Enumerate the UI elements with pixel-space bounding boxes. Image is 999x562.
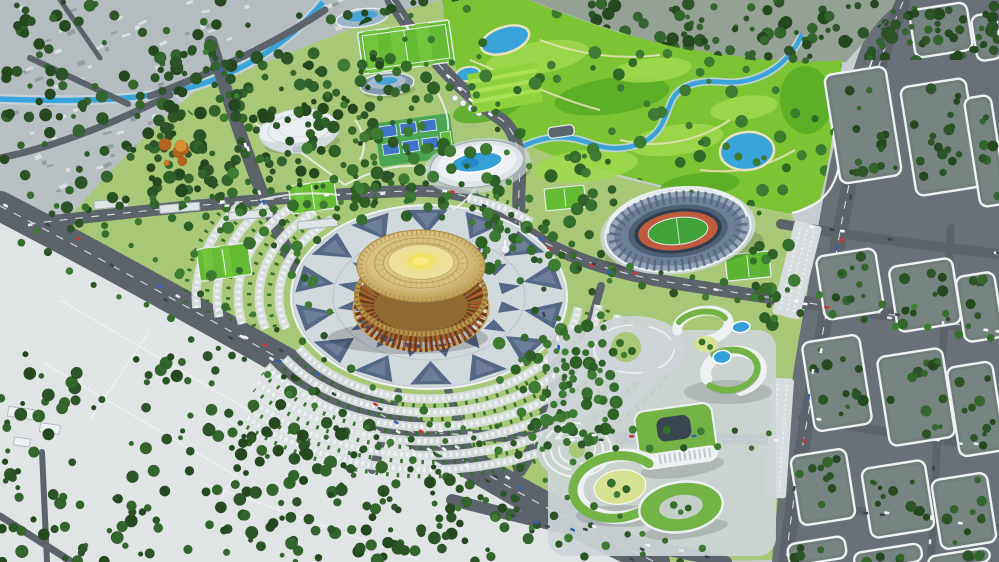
street-tree (426, 421, 433, 428)
tree (540, 414, 552, 426)
street-tree (525, 194, 533, 202)
tree (424, 203, 433, 212)
tree (45, 66, 56, 77)
street-tree (878, 300, 886, 308)
tree (320, 201, 328, 209)
street-tree (220, 113, 229, 122)
street-tree (545, 251, 553, 259)
tree (492, 109, 498, 115)
tree (305, 121, 311, 127)
street-tree (369, 384, 376, 391)
tree (280, 553, 285, 558)
street-tree (338, 409, 347, 418)
street-tree (561, 383, 568, 390)
street-tree (680, 444, 687, 451)
tree (788, 274, 800, 286)
street-tree (101, 222, 108, 229)
tree (281, 52, 293, 64)
tree (407, 182, 417, 192)
street-tree (150, 195, 157, 202)
street-tree (384, 9, 391, 16)
street-tree (305, 301, 312, 308)
street-tree (891, 323, 899, 331)
street-tree (527, 424, 534, 431)
tree (1, 73, 11, 83)
street-tree (525, 226, 531, 232)
car (224, 204, 229, 207)
tree (150, 140, 157, 147)
street-tree (128, 243, 133, 248)
tree (675, 157, 686, 168)
car (929, 539, 932, 544)
tree (761, 255, 771, 265)
car (599, 439, 604, 442)
tree (371, 182, 380, 191)
render-stage (0, 0, 999, 562)
tree (553, 75, 561, 83)
tree (17, 141, 25, 149)
tree (168, 111, 179, 122)
tree (385, 53, 396, 64)
tree (266, 430, 273, 437)
tree (245, 526, 258, 539)
tree (249, 486, 261, 498)
tree (184, 377, 191, 384)
tree (774, 131, 786, 143)
street-tree (495, 101, 500, 106)
tree (585, 230, 594, 239)
tree (308, 387, 316, 395)
tree (42, 389, 55, 402)
street-tree (299, 337, 307, 345)
tree (243, 237, 255, 249)
tree (74, 16, 84, 26)
street-tree (303, 200, 311, 208)
street-tree (236, 208, 244, 216)
tree (258, 61, 268, 71)
street-tree (409, 456, 417, 464)
tree (346, 464, 355, 473)
street-tree (311, 402, 318, 409)
tree (636, 50, 645, 59)
tree (51, 525, 59, 533)
street-tree (720, 278, 729, 287)
tree (287, 200, 299, 212)
tree (265, 522, 274, 531)
street-tree (491, 515, 498, 522)
street-tree (578, 441, 586, 449)
tree (59, 20, 71, 32)
street-tree (987, 334, 995, 342)
tree (704, 44, 710, 50)
tree (762, 5, 772, 15)
tree (750, 27, 755, 32)
tree (240, 510, 250, 520)
street-tree (427, 36, 435, 44)
tree (30, 516, 36, 522)
tree (486, 552, 495, 561)
tree (112, 496, 118, 502)
tree (359, 132, 370, 143)
tree (206, 270, 217, 281)
tree (58, 81, 67, 90)
tree (216, 95, 224, 103)
tree (521, 334, 529, 342)
tree (412, 95, 420, 103)
tree (684, 22, 693, 31)
tree (289, 453, 301, 465)
tree (222, 222, 234, 234)
tree (228, 428, 238, 438)
tree (444, 145, 456, 157)
tree (182, 71, 187, 76)
car (556, 437, 561, 440)
tree (909, 24, 915, 30)
tree (846, 4, 851, 9)
tree (588, 188, 598, 198)
tree (126, 501, 136, 511)
tree (235, 50, 243, 58)
tree (475, 236, 487, 248)
tree (5, 448, 10, 453)
tree (313, 110, 323, 120)
tree (375, 461, 387, 473)
tree (428, 532, 441, 545)
tree (686, 122, 693, 129)
street-tree (954, 330, 963, 339)
street-tree (732, 427, 738, 433)
tree (198, 144, 207, 153)
street-tree (408, 436, 415, 443)
street-tree (468, 83, 476, 91)
tree (178, 435, 183, 440)
street-tree (455, 485, 463, 493)
tree (699, 17, 704, 22)
tree (194, 107, 207, 120)
tree (925, 9, 936, 20)
tree (561, 358, 566, 363)
tree (769, 297, 774, 302)
street-tree (469, 205, 476, 212)
tree (380, 498, 386, 504)
tree (65, 186, 73, 194)
street-tree (135, 218, 142, 225)
tree (255, 457, 265, 467)
tree (206, 404, 217, 415)
tree (273, 447, 282, 456)
street-tree (594, 425, 603, 434)
tree (387, 496, 393, 502)
tree (163, 171, 176, 184)
tree (295, 259, 300, 264)
tree (100, 146, 110, 156)
street-tree (217, 192, 224, 199)
tree (187, 47, 196, 56)
city-block (790, 448, 856, 526)
tree (170, 131, 176, 137)
tree (327, 525, 335, 533)
tree (278, 500, 284, 506)
tree (335, 484, 347, 496)
car (930, 515, 933, 520)
tree (337, 59, 350, 72)
tree (177, 156, 187, 166)
tree (758, 295, 765, 302)
tree (71, 114, 76, 119)
tree (32, 410, 45, 423)
street-tree (75, 219, 84, 228)
street-tree (556, 316, 562, 322)
street-tree (796, 309, 804, 317)
tree (439, 214, 446, 221)
tree (430, 491, 435, 496)
tree (14, 408, 27, 421)
tree (308, 81, 319, 92)
tree (203, 423, 216, 436)
tree (284, 117, 291, 124)
street-tree (494, 446, 503, 455)
tree (993, 35, 999, 43)
tree (858, 27, 869, 38)
street-tree (580, 552, 588, 560)
tree (314, 185, 319, 190)
street-tree (483, 497, 490, 504)
street-tree (44, 248, 52, 256)
tree (15, 485, 20, 490)
tree (203, 66, 210, 73)
tree (158, 87, 166, 95)
tree (12, 66, 23, 77)
tree (324, 92, 330, 98)
tree (445, 504, 455, 514)
street-tree (517, 277, 524, 284)
street-tree (274, 327, 280, 333)
tree (5, 109, 15, 119)
tree (167, 353, 174, 360)
tree (84, 0, 96, 12)
tree (256, 541, 266, 551)
tree (277, 156, 287, 166)
tree (371, 167, 384, 180)
tree (519, 386, 527, 394)
tree (365, 85, 370, 90)
street-tree (554, 425, 562, 433)
street-tree (942, 310, 949, 317)
tree (553, 367, 559, 373)
tree (421, 143, 432, 154)
street-tree (564, 534, 573, 543)
tree (308, 47, 320, 59)
tree (122, 196, 130, 204)
street-tree (347, 364, 356, 373)
tree (285, 537, 298, 550)
street-tree (531, 307, 539, 315)
street-tree (590, 502, 598, 510)
tree (284, 477, 296, 489)
tree (320, 117, 330, 127)
street-tree (476, 440, 483, 447)
tree (797, 150, 807, 160)
football-field-west (196, 243, 252, 282)
tree (227, 188, 238, 199)
street-tree (294, 250, 301, 257)
tree (341, 96, 346, 101)
street-tree (445, 83, 453, 91)
tree (241, 151, 247, 157)
street-tree (321, 357, 327, 363)
tree (343, 10, 353, 20)
street-tree (49, 210, 56, 217)
street-tree (245, 179, 252, 186)
tree (473, 91, 480, 98)
tree (20, 29, 29, 38)
tree (802, 40, 811, 49)
tree (46, 79, 54, 87)
tree (265, 454, 270, 459)
tree (125, 145, 132, 152)
street-tree (924, 323, 931, 330)
tree (370, 127, 383, 140)
tree (945, 29, 953, 37)
tree (235, 156, 240, 161)
tree (127, 153, 135, 161)
tree (504, 228, 510, 234)
tree (826, 28, 831, 33)
street-tree (422, 180, 429, 187)
tree (313, 236, 321, 244)
tree (847, 37, 853, 43)
tree (446, 512, 456, 522)
street-tree (568, 241, 575, 248)
tree (590, 363, 598, 371)
tree (427, 81, 440, 94)
street-tree (203, 49, 209, 55)
tree (524, 360, 530, 366)
tree (772, 86, 780, 94)
tree (71, 367, 83, 379)
street-tree (550, 401, 557, 408)
tree (159, 138, 172, 151)
tree (569, 252, 576, 259)
city-block (801, 334, 872, 432)
tree (126, 471, 138, 483)
tree (590, 150, 602, 162)
tree (375, 74, 383, 82)
tree (299, 476, 308, 485)
street-tree (494, 423, 500, 429)
tree (92, 83, 99, 90)
tree (17, 526, 27, 536)
tree (523, 533, 534, 544)
tree (154, 154, 161, 161)
tree (234, 113, 241, 120)
street-tree (168, 214, 176, 222)
tree (96, 91, 108, 103)
street-tree (153, 257, 158, 262)
car (220, 200, 225, 203)
tree (43, 428, 55, 440)
street-tree (520, 129, 526, 135)
tree (588, 341, 595, 348)
street-tree (250, 311, 256, 317)
tree (407, 466, 413, 472)
street-tree (460, 425, 466, 431)
tree (107, 192, 118, 203)
tree (545, 169, 558, 182)
tree (179, 201, 186, 208)
tree (334, 206, 340, 212)
tree (329, 145, 341, 157)
tree (586, 326, 591, 331)
tree (264, 112, 275, 123)
tree (774, 27, 786, 39)
tree (180, 428, 185, 433)
street-tree (176, 268, 185, 277)
tree (381, 491, 386, 496)
tree (144, 504, 151, 511)
street-tree (508, 212, 514, 218)
tree (356, 214, 367, 225)
tree (327, 492, 333, 498)
tree (870, 0, 879, 8)
tree (98, 396, 105, 403)
street-tree (860, 316, 867, 323)
tree (360, 445, 367, 452)
tree (582, 154, 587, 159)
tree (359, 197, 370, 208)
tree (164, 160, 170, 166)
tree (891, 9, 896, 14)
tree (562, 374, 567, 379)
tree (49, 14, 57, 22)
tree (418, 122, 426, 130)
tree (420, 72, 432, 84)
tree (427, 171, 439, 183)
tree (390, 120, 396, 126)
tree (529, 77, 542, 90)
tree (175, 185, 187, 197)
city-block (888, 257, 962, 332)
tree (485, 548, 490, 553)
tree (61, 201, 73, 213)
tree (374, 434, 380, 440)
tree (233, 464, 241, 472)
tree (701, 38, 708, 45)
street-tree (510, 440, 517, 447)
tree (482, 207, 494, 219)
street-tree (254, 157, 260, 163)
tree (465, 480, 475, 490)
street-tree (402, 37, 408, 43)
tree (638, 18, 648, 28)
tree (200, 18, 208, 26)
tree (303, 63, 308, 68)
tree (202, 488, 211, 497)
tree (753, 158, 760, 165)
street-tree (458, 181, 464, 187)
tree (456, 520, 463, 527)
street-tree (542, 478, 547, 483)
tree (24, 112, 34, 122)
tree (608, 408, 619, 419)
tree (119, 70, 130, 81)
tree (424, 476, 436, 488)
tree (572, 347, 581, 356)
street-tree (326, 308, 333, 315)
street-tree (244, 123, 253, 132)
tree (209, 151, 215, 157)
tree (184, 174, 194, 184)
